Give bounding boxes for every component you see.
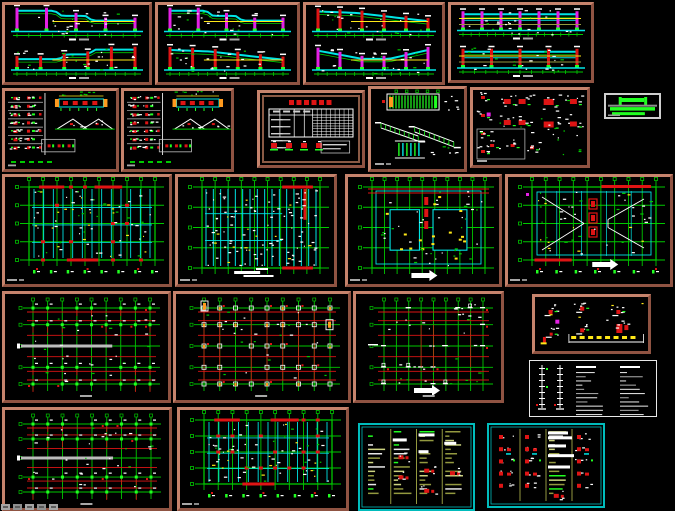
sheet-notes-cyan-1[interactable] xyxy=(358,423,475,511)
sheet-column-plan-1-drawing xyxy=(5,294,168,400)
sheet-column-plan-4[interactable] xyxy=(2,407,172,511)
sheet-schedule-table-drawing xyxy=(260,93,362,165)
sheet-notes-cyan-2[interactable] xyxy=(487,423,605,508)
sheet-plan-5-drawing xyxy=(180,410,346,508)
sheet-details-1[interactable] xyxy=(2,88,119,172)
sheet-details-1-drawing xyxy=(5,91,116,169)
legend-block[interactable] xyxy=(604,93,661,119)
sheet-details-3-drawing xyxy=(473,90,587,165)
legend-block-drawing xyxy=(606,95,659,117)
sheet-elevation-2-drawing xyxy=(158,5,297,82)
sheet-elevation-4-drawing xyxy=(451,5,591,80)
sheet-foundation-details[interactable] xyxy=(532,294,651,354)
sheet-elevation-3-drawing xyxy=(306,5,442,82)
sheet-notes-general-drawing xyxy=(530,361,656,416)
sheet-schedule-table[interactable] xyxy=(257,90,365,168)
sheet-plan-3[interactable] xyxy=(345,174,502,287)
sheet-column-plan-2[interactable] xyxy=(173,291,351,403)
sheet-column-plan-3[interactable] xyxy=(353,291,504,403)
sheet-elevation-1-drawing xyxy=(5,5,149,82)
sheet-elevation-4[interactable] xyxy=(448,2,594,83)
sheet-stairs-drawing xyxy=(371,89,464,169)
sheet-notes-cyan-1-drawing xyxy=(360,425,473,509)
sheet-plan-3-drawing xyxy=(348,177,499,284)
cad-sheet-set-overview xyxy=(0,0,675,511)
sheet-column-plan-3-drawing xyxy=(356,294,501,400)
sheet-plan-2[interactable] xyxy=(175,174,337,287)
sheet-column-plan-4-drawing xyxy=(5,410,169,508)
sheet-elevation-2[interactable] xyxy=(155,2,300,85)
sheet-elevation-1[interactable] xyxy=(2,2,152,85)
sheet-notes-cyan-2-drawing xyxy=(489,425,603,506)
sheet-column-plan-1[interactable] xyxy=(2,291,171,403)
sheet-notes-general[interactable] xyxy=(529,360,657,417)
sheet-plan-2-drawing xyxy=(178,177,334,284)
sheet-column-plan-2-drawing xyxy=(176,294,348,400)
sheet-details-2-drawing xyxy=(124,91,231,169)
sheet-plan-1[interactable] xyxy=(2,174,172,287)
watermark xyxy=(1,503,81,511)
sheet-elevation-3[interactable] xyxy=(303,2,445,85)
sheet-plan-4[interactable] xyxy=(505,174,673,287)
sheet-details-3[interactable] xyxy=(470,87,590,168)
sheet-stairs[interactable] xyxy=(368,86,467,172)
sheet-details-2[interactable] xyxy=(121,88,234,172)
sheet-foundation-details-drawing xyxy=(535,297,648,351)
sheet-plan-5[interactable] xyxy=(177,407,349,511)
sheet-plan-1-drawing xyxy=(5,177,169,284)
sheet-plan-4-drawing xyxy=(508,177,670,284)
